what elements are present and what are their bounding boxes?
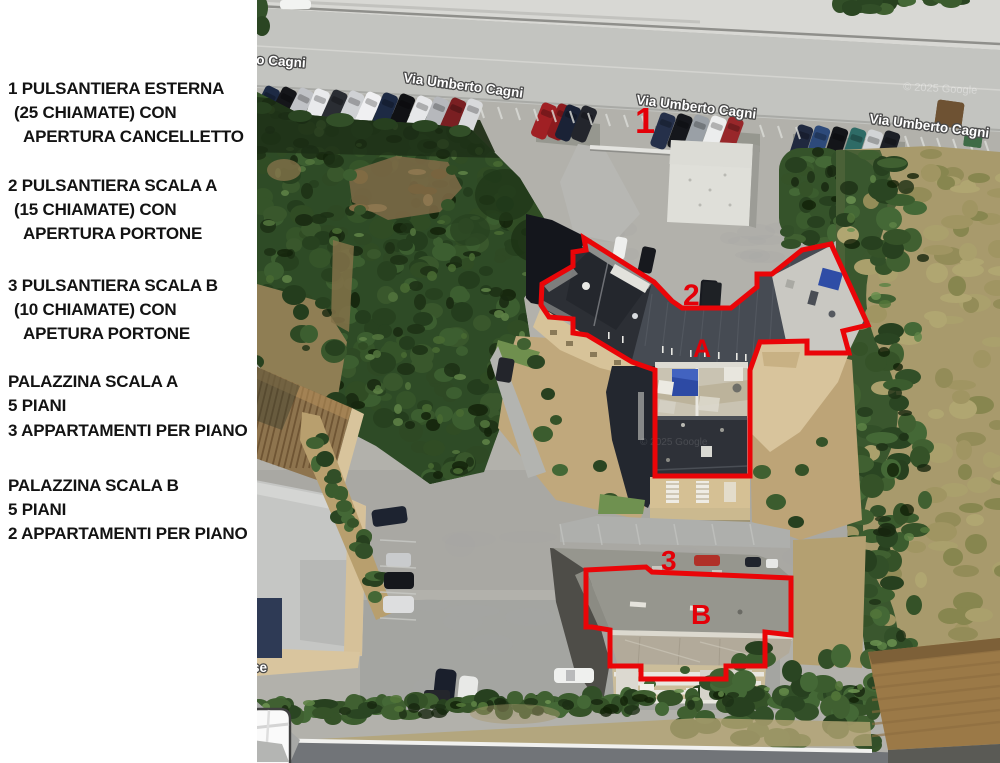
svg-text:1: 1 bbox=[635, 100, 655, 141]
svg-text:B: B bbox=[691, 599, 711, 630]
svg-text:se: se bbox=[257, 660, 268, 675]
svg-text:© 2025 Google: © 2025 Google bbox=[640, 437, 708, 448]
svg-text:2: 2 bbox=[683, 279, 700, 312]
svg-text:3: 3 bbox=[661, 545, 677, 576]
svg-text:A: A bbox=[693, 335, 711, 363]
